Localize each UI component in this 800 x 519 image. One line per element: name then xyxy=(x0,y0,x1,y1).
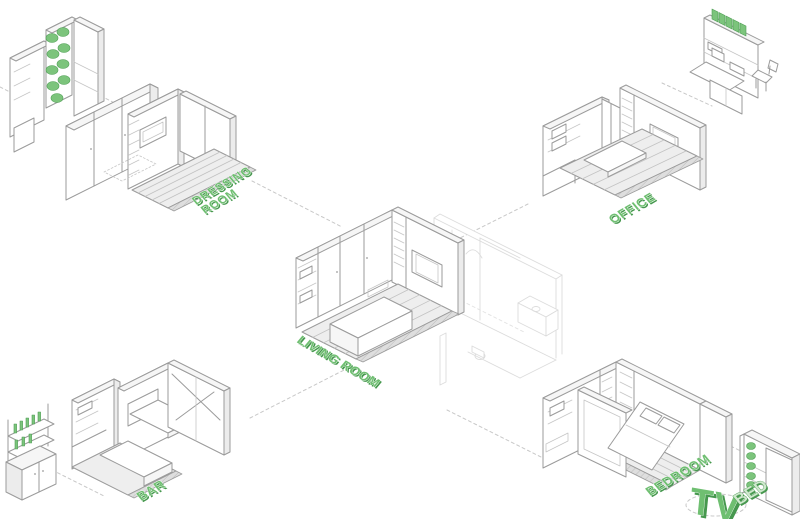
diagram-canvas: DRESSINGROOM DRESSINGROOM xyxy=(0,0,800,519)
bar-axon: BAR BAR xyxy=(72,360,230,505)
bedroom-axon: BEDROOM BEDROOM xyxy=(543,359,732,500)
axonometric-diagram: DRESSINGROOM DRESSINGROOM xyxy=(0,0,800,519)
detail-bar-cabinet xyxy=(6,404,56,500)
living-room-axon: LIVING ROOM LIVING ROOM xyxy=(294,207,562,392)
detail-desk-shelf xyxy=(690,9,778,114)
office-label: OFFICE OFFICE xyxy=(605,190,660,228)
office-axon: OFFICE OFFICE xyxy=(543,85,706,228)
